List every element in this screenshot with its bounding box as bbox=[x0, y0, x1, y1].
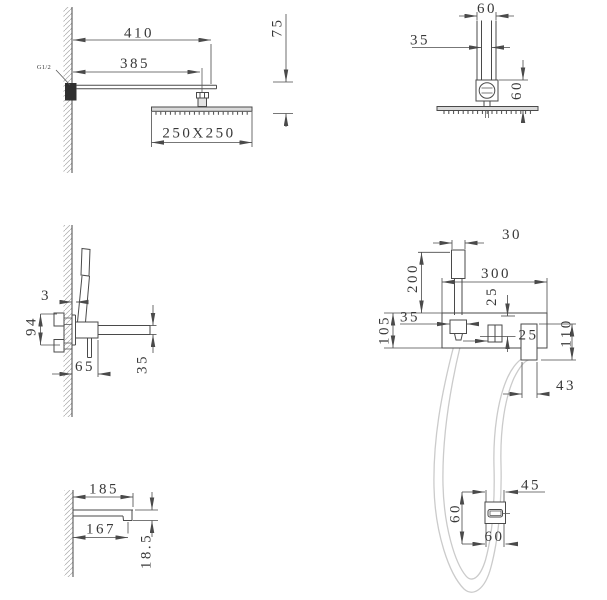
dim-75: 75 bbox=[270, 14, 294, 127]
diverter-detail bbox=[488, 325, 502, 342]
thread-label: G1/2 bbox=[37, 64, 51, 71]
dim-label-105: 105 bbox=[377, 315, 393, 345]
dim-185: 185 bbox=[73, 482, 133, 508]
dim-label-60-bottom: 60 bbox=[485, 529, 505, 545]
dim-label-60-side: 60 bbox=[509, 80, 525, 100]
hand-shower-hose bbox=[434, 345, 529, 592]
down-pipe bbox=[88, 338, 92, 358]
view-shower-arm-front: 60 35 60 bbox=[410, 1, 538, 122]
dim-45: 45 bbox=[472, 478, 545, 503]
lever-handle bbox=[78, 249, 91, 323]
dim-label-110: 110 bbox=[559, 318, 575, 347]
head-connector bbox=[197, 93, 209, 107]
dim-label-75: 75 bbox=[270, 18, 286, 38]
nozzle-ticks bbox=[155, 112, 249, 115]
dim-35: 35 bbox=[410, 33, 510, 49]
spout-arm bbox=[98, 326, 150, 335]
hand-shower bbox=[452, 250, 466, 315]
dim-label-3: 3 bbox=[41, 288, 51, 304]
dim-385: 385 bbox=[73, 56, 200, 72]
nozzle-ticks bbox=[441, 111, 534, 114]
dim-60-top: 60 bbox=[459, 1, 514, 20]
dim-18-5: 18.5 bbox=[133, 492, 158, 569]
dim-label-250x250: 250X250 bbox=[162, 126, 235, 142]
view-valve-front: 25 30 200 300 105 bbox=[377, 227, 577, 592]
dim-35: 35 bbox=[135, 305, 157, 374]
wall-hatching bbox=[64, 225, 73, 417]
dim-label-43: 43 bbox=[556, 378, 576, 394]
drawing-canvas: 410 385 75 250X250 G1/2 bbox=[0, 0, 607, 600]
view-shower-arm-side: 410 385 75 250X250 G1/2 bbox=[37, 7, 293, 173]
dim-label-94: 94 bbox=[24, 316, 40, 336]
dim-250x250: 250X250 bbox=[152, 112, 253, 147]
dim-label-35: 35 bbox=[135, 354, 151, 374]
view-valve-side: 3 94 65 35 bbox=[24, 225, 157, 417]
wall-hatching bbox=[65, 490, 74, 577]
dim-label-25-block: 25 bbox=[519, 328, 539, 344]
shower-head-plate bbox=[152, 107, 253, 111]
spout-profile bbox=[73, 510, 133, 521]
dim-label-45: 45 bbox=[521, 478, 541, 494]
dim-410: 410 bbox=[73, 26, 211, 85]
arm-front-lines bbox=[477, 21, 496, 81]
dim-label-30: 30 bbox=[502, 227, 522, 243]
view-outlet-front: 45 60 60 bbox=[448, 478, 546, 548]
dim-60-bottom: 60 bbox=[472, 524, 517, 548]
dim-label-35: 35 bbox=[400, 310, 420, 326]
dim-label-185: 185 bbox=[89, 482, 119, 498]
shower-arm bbox=[76, 85, 217, 89]
dim-60-left: 60 bbox=[448, 492, 473, 544]
dim-30: 30 bbox=[433, 227, 522, 249]
dim-label-35: 35 bbox=[410, 33, 430, 49]
escutcheon-plate bbox=[72, 315, 76, 345]
dim-label-167: 167 bbox=[86, 522, 116, 538]
dim-label-300: 300 bbox=[481, 266, 511, 282]
technical-drawing-sheet: 410 385 75 250X250 G1/2 bbox=[0, 0, 607, 600]
head-plate-edge bbox=[437, 107, 538, 111]
dim-200: 200 bbox=[405, 252, 450, 313]
valve-body bbox=[76, 322, 99, 338]
arm-connector bbox=[476, 80, 498, 107]
view-spout-side: 185 167 18.5 bbox=[65, 482, 159, 578]
dim-label-65: 65 bbox=[75, 359, 95, 375]
dim-label-60-top: 60 bbox=[477, 1, 497, 17]
dim-label-18-5: 18.5 bbox=[139, 533, 155, 569]
dim-label-25-top: 25 bbox=[484, 286, 500, 306]
dim-label-410: 410 bbox=[124, 26, 154, 42]
dim-167: 167 bbox=[73, 522, 128, 538]
dim-label-200: 200 bbox=[405, 263, 421, 293]
wall-flange bbox=[66, 84, 77, 101]
dim-label-385: 385 bbox=[120, 56, 150, 72]
dim-label-60-left: 60 bbox=[448, 503, 464, 523]
